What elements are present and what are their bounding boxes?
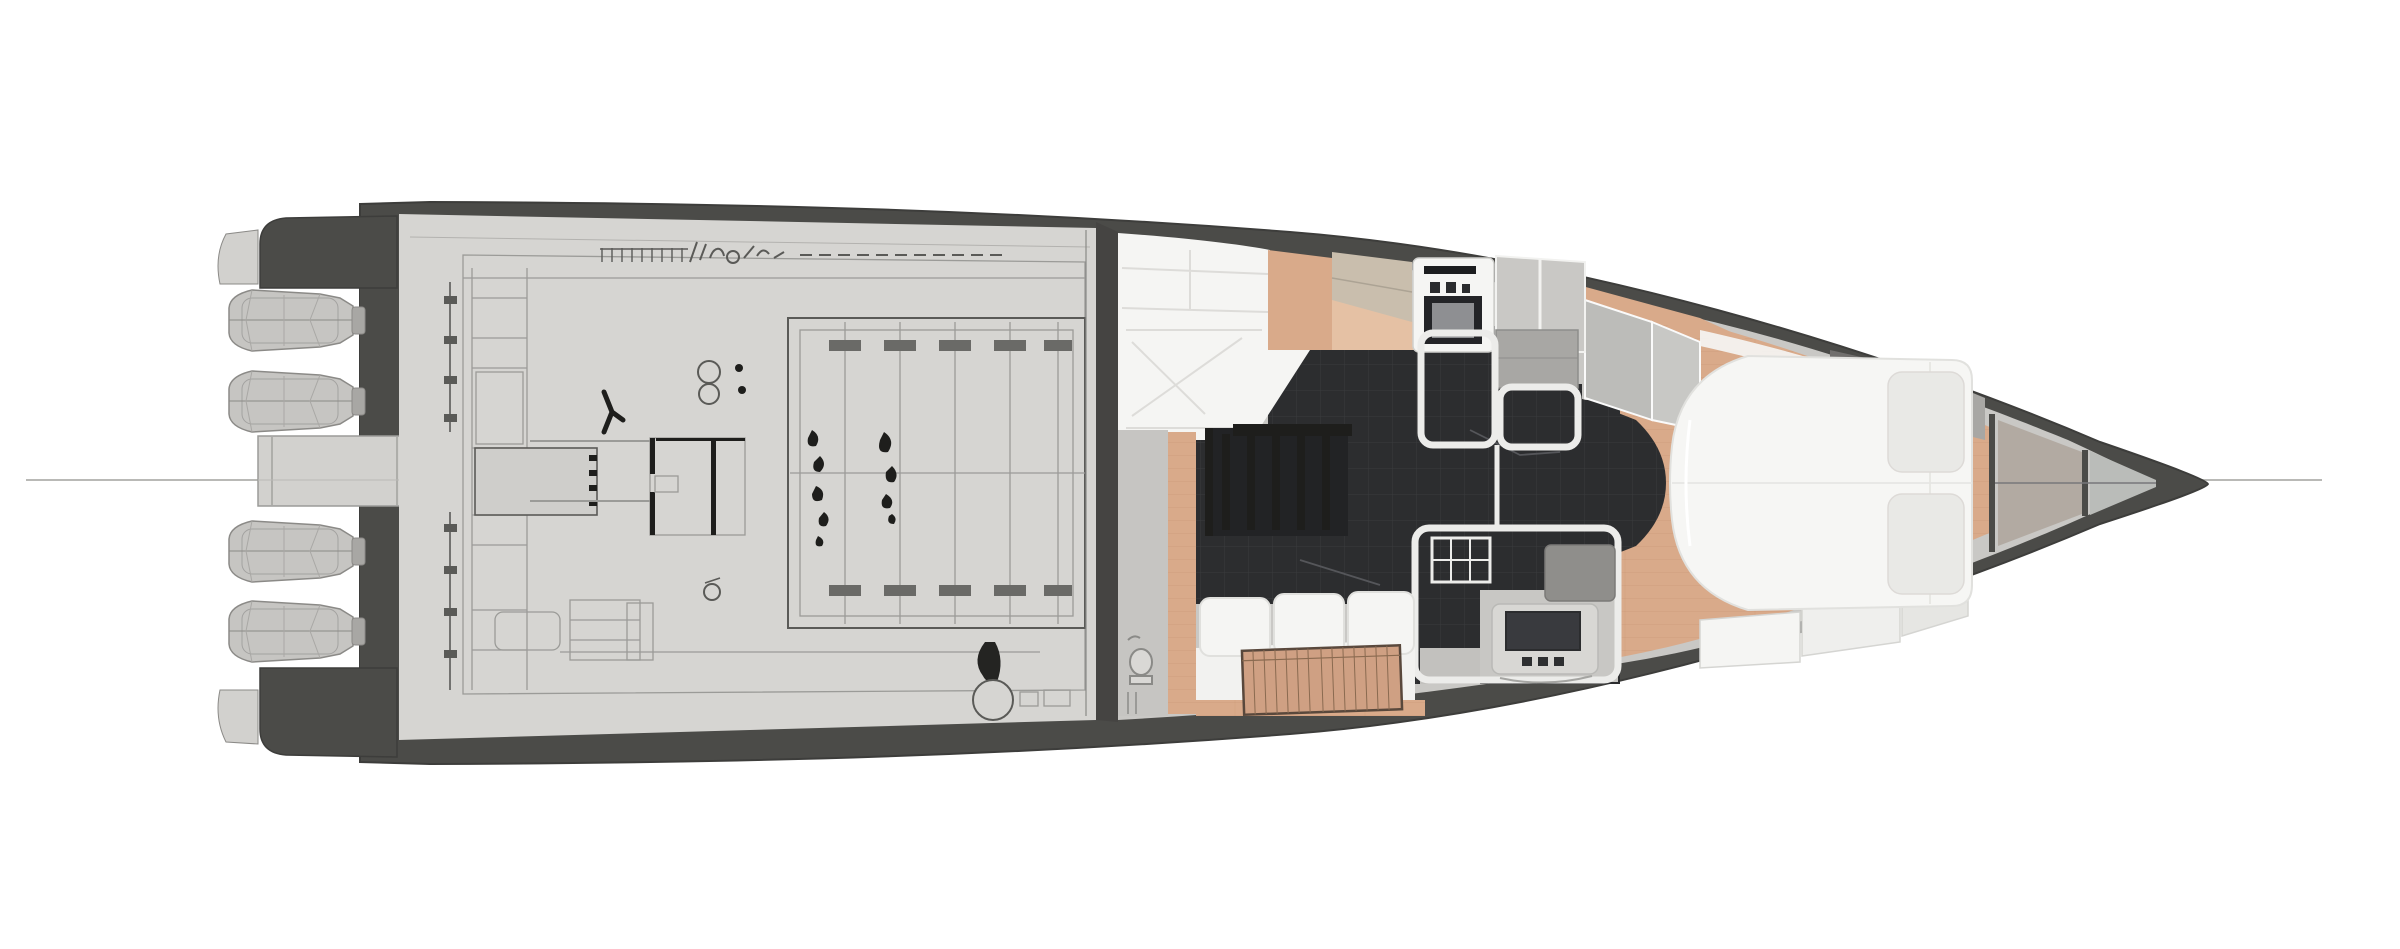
wood-trim-strip bbox=[1168, 432, 1196, 714]
coffee-table bbox=[1242, 645, 1402, 714]
engine-4 bbox=[229, 601, 365, 662]
stern-trim-bottom bbox=[218, 690, 258, 744]
engine-3 bbox=[229, 521, 365, 582]
tv-unit bbox=[1492, 604, 1598, 683]
engine-2 bbox=[229, 371, 365, 432]
floor-plan-svg bbox=[0, 0, 2400, 949]
stern-corner-bottom bbox=[260, 668, 397, 757]
owner-bed bbox=[1670, 356, 1972, 610]
stern-trim-top bbox=[218, 230, 258, 284]
aft-deck-plan bbox=[399, 214, 1096, 740]
engine-1 bbox=[229, 290, 365, 351]
yacht-floor-plan-image bbox=[0, 0, 2400, 949]
companionway-stairs bbox=[1205, 424, 1352, 536]
stern-corner-top bbox=[260, 216, 397, 288]
interior bbox=[1118, 233, 2156, 720]
